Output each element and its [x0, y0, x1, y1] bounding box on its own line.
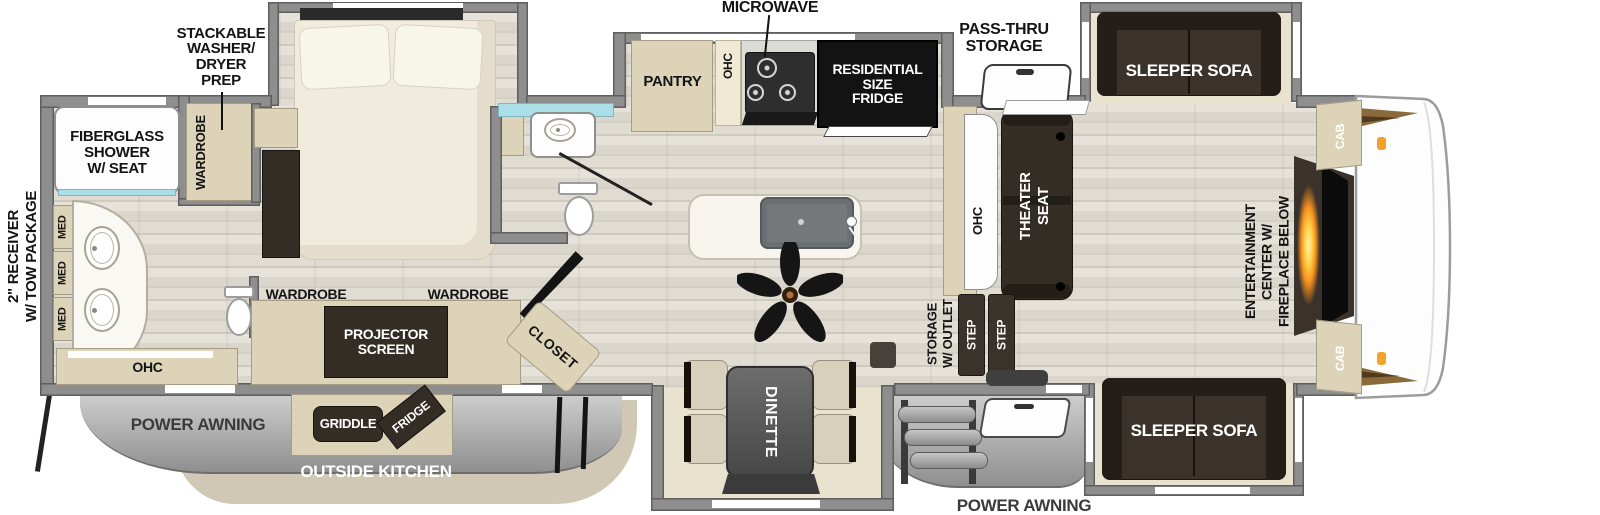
nightstand [254, 108, 298, 148]
receiver-label: 2" RECEIVER W/ TOW PACKAGE [4, 150, 42, 362]
sleeper-sofa-label: SLEEPER SOFA [1108, 421, 1280, 441]
sofa-back [1097, 12, 1281, 30]
dinette-slide-window [712, 500, 820, 508]
toilet-tank [224, 286, 254, 298]
bed-slide-wall [517, 2, 528, 106]
dinette-label: DINETTE [756, 378, 784, 466]
med-label: MED [55, 253, 71, 293]
window [502, 385, 542, 393]
toilet-bowl [226, 298, 252, 336]
entry-step [904, 429, 982, 446]
shower-glass [58, 189, 176, 196]
sink-drain [798, 219, 804, 225]
projector-screen-label: PROJECTOR SCREEN [328, 320, 444, 364]
washer-dryer-prep-label: STACKABLE WASHER/ DRYER PREP [162, 24, 280, 90]
sofa-slide-window [1295, 398, 1302, 462]
step-label: STEP [962, 298, 981, 372]
pillow [392, 24, 483, 91]
island-faucet [846, 216, 857, 227]
stove-burner [779, 84, 796, 101]
front-cap [1346, 86, 1456, 408]
chair-arm [849, 416, 856, 462]
power-awning-label-left: POWER AWNING [112, 414, 284, 436]
cupholder [1056, 132, 1065, 141]
fiberglass-shower-label: FIBERGLASS SHOWER W/ SEAT [56, 122, 178, 184]
outside-kitchen-label: OUTSIDE KITCHEN [278, 461, 474, 483]
toilet-bowl [564, 196, 594, 236]
front-ohc-label: OHC [968, 200, 988, 242]
ceiling-fan-icon [737, 242, 843, 348]
washer-prep-leader-line [221, 92, 223, 130]
sink-drain [92, 246, 97, 251]
sofa-slide-window [1293, 22, 1300, 78]
sink-drain [556, 128, 560, 132]
side-table [870, 342, 896, 368]
mid-bath-wall [490, 106, 502, 244]
mid-bath-sink [544, 118, 576, 142]
wardrobe-label: WARDROBE [418, 286, 518, 303]
chair-arm [684, 362, 691, 408]
pantry-label: PANTRY [635, 73, 710, 91]
griddle: GRIDDLE [313, 406, 383, 442]
step-label: STEP [992, 298, 1011, 372]
residential-fridge-label: RESIDENTIAL SIZE FRIDGE [821, 50, 934, 118]
rear-wardrobe-label: WARDROBE [192, 110, 210, 196]
chair-arm [684, 416, 691, 462]
tv-panel [1322, 160, 1348, 332]
power-awning-label-right: POWER AWNING [938, 496, 1110, 515]
entry-step [898, 406, 976, 423]
dinette-slide-wall [881, 385, 894, 511]
pillow [298, 24, 391, 91]
pass-thru-sill [1002, 100, 1090, 115]
stove-burner [747, 84, 764, 101]
pass-thru-handle [1016, 69, 1034, 75]
window [1046, 385, 1082, 393]
sofa-armrest [1097, 12, 1117, 96]
stove-burner [757, 58, 777, 78]
fireplace-flame [1297, 184, 1320, 306]
microwave-label: MICROWAVE [708, 0, 832, 16]
sofa-back [1102, 378, 1286, 396]
cab-label: CAB [1330, 333, 1350, 383]
rear-awning-arm [35, 394, 52, 472]
fridge-open-door [823, 126, 933, 137]
pass-thru-label: PASS-THRU STORAGE [938, 20, 1070, 58]
counter-edge [742, 112, 818, 125]
sofa-slide-window [1086, 398, 1093, 462]
entry-mat [986, 370, 1048, 386]
stove-cooktop [745, 52, 815, 114]
bedroom-dresser [262, 150, 300, 258]
med-label: MED [55, 207, 71, 247]
dinette-window-shade [722, 474, 820, 494]
sofa-armrest [1261, 12, 1281, 96]
storage-outlet-label: STORAGE W/ OUTLET [922, 288, 958, 380]
storage-door-handle [1014, 404, 1034, 409]
toilet-tank [558, 182, 598, 195]
rv-floorplan: FIBERGLASS SHOWER W/ SEAT WARDROBE MED M… [0, 0, 1600, 515]
med-label: MED [55, 299, 71, 339]
chair-arm [849, 362, 856, 408]
kitchen-ohc-label: OHC [718, 46, 738, 86]
vanity-sink [84, 288, 120, 332]
cupholder [1056, 282, 1065, 291]
sofa-slide-window [1082, 22, 1089, 78]
window [165, 385, 235, 393]
sofa-slide-window [1155, 487, 1250, 494]
sink-drain [92, 308, 97, 313]
mid-bath-wall [490, 232, 568, 244]
bath-ohc-label: OHC [110, 358, 185, 376]
vanity-sink [84, 226, 120, 270]
wardrobe-label: WARDROBE [256, 286, 356, 303]
bath-ohc-trim [68, 351, 213, 358]
sleeper-sofa-label: SLEEPER SOFA [1103, 61, 1275, 81]
entertainment-label: ENTERTAINMENT CENTER W/ FIREPLACE BELOW [1236, 162, 1298, 362]
entry-step [910, 452, 988, 469]
theater-seat-label: THEATER SEAT [1008, 152, 1062, 260]
rear-wall [40, 95, 54, 396]
cab-label: CAB [1330, 111, 1350, 161]
window [88, 97, 166, 105]
dinette-slide-wall [651, 385, 664, 511]
